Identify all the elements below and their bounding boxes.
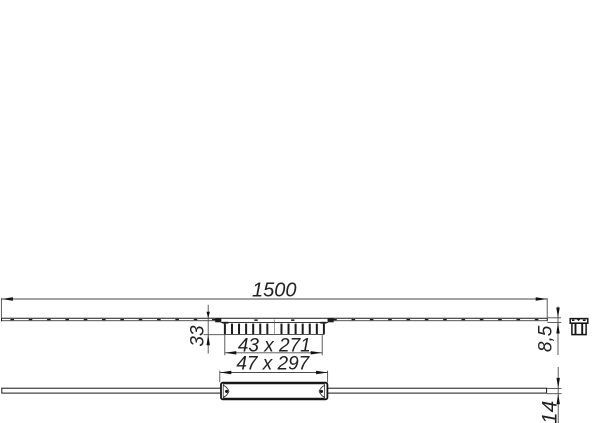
svg-text:33: 33: [188, 325, 209, 347]
svg-text:47 x 297: 47 x 297: [236, 353, 310, 374]
svg-text:8,5: 8,5: [535, 325, 556, 352]
svg-text:1500: 1500: [252, 280, 297, 302]
svg-text:14: 14: [538, 401, 561, 423]
